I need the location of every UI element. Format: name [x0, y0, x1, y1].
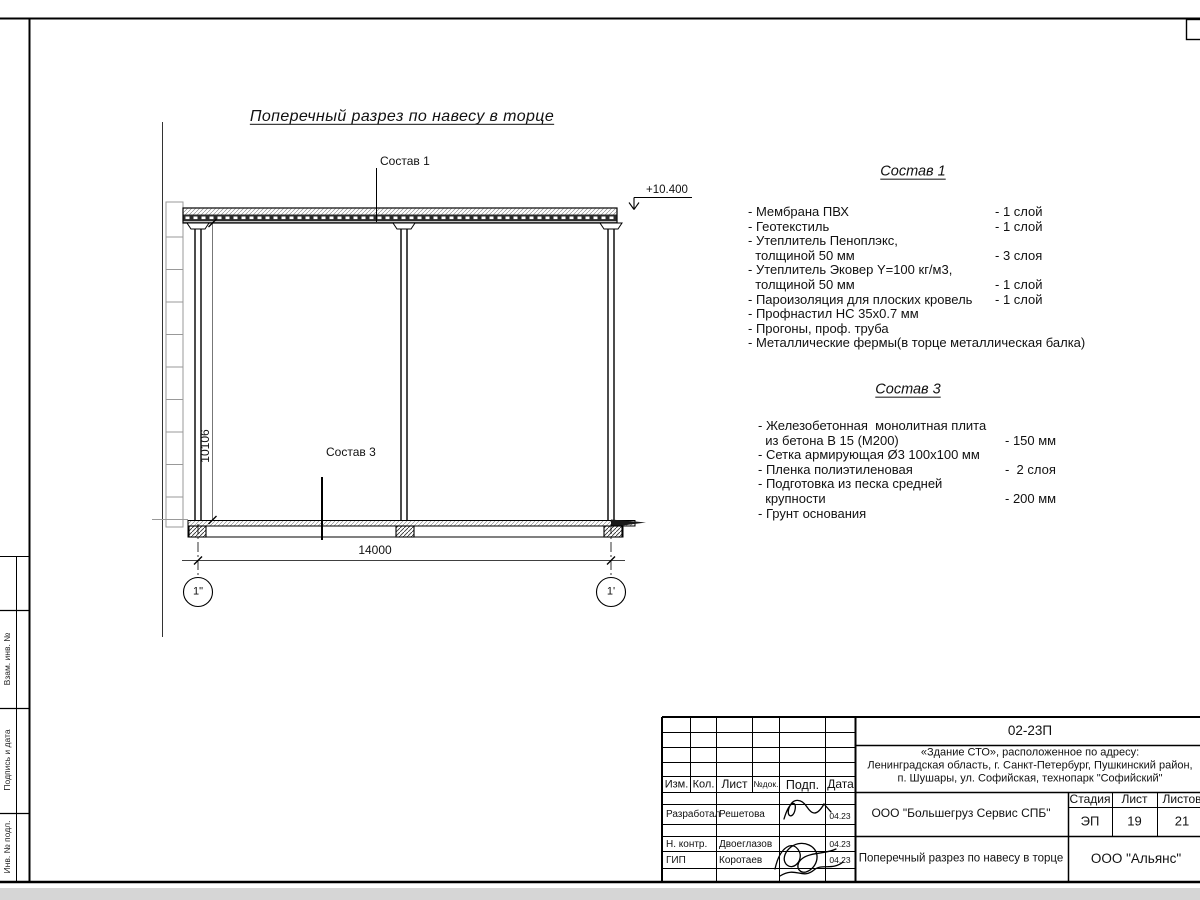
- sheet-number: 19: [1127, 815, 1141, 830]
- elevation-value: +10.400: [646, 184, 688, 197]
- signer-role-developer: Разработал: [666, 809, 720, 821]
- signer-name-gip: Коротаев: [719, 855, 762, 867]
- dim-vertical: 10106: [199, 429, 213, 462]
- margin-label-podpis-data: Подпись и дата: [3, 729, 13, 790]
- spec-item: толщиной 50 мм - 1 слой: [748, 277, 1098, 292]
- spec-item-value: - 2 слоя: [1005, 462, 1056, 477]
- spec-item-text: толщиной 50 мм: [748, 277, 855, 292]
- spec-item: - Утеплитель Эковер Y=100 кг/м3,: [748, 262, 1098, 277]
- col-podp: Подп.: [786, 777, 819, 791]
- spec-item: - Профнастил НС 35х0.7 мм: [748, 306, 1098, 321]
- spec-item-value: - 3 слоя: [995, 248, 1042, 263]
- axis-label-left: 1": [193, 586, 203, 599]
- spec-item: - Металлические фермы(в торце металличес…: [748, 335, 1098, 350]
- spec-item: - Мембрана ПВХ - 1 слой: [748, 204, 1098, 219]
- axis-label-right: 1': [607, 586, 615, 599]
- spec-item: - Геотекстиль - 1 слой: [748, 219, 1098, 234]
- object-address-line2: Ленинградская область, г. Санкт-Петербур…: [867, 760, 1192, 773]
- signer-role-gip: ГИП: [666, 855, 686, 867]
- spec3-list: - Железобетонная монолитная плита из бет…: [758, 418, 1108, 520]
- stage-value: ЭП: [1081, 815, 1100, 830]
- drawing-title: Поперечный разрез по навесу в торце: [250, 108, 554, 126]
- adjacent-structure: [152, 122, 188, 637]
- signer-date-gip: 04.23: [829, 856, 850, 866]
- spec-item: - Пленка полиэтиленовая - 2 слоя: [758, 462, 1108, 477]
- spec-item-value: - 200 мм: [1005, 491, 1056, 506]
- signature-control: [775, 843, 836, 872]
- spec-item-text: - Подготовка из песка средней: [758, 476, 942, 491]
- spec-item-text: толщиной 50 мм: [748, 248, 855, 263]
- spec-item: - Утеплитель Пеноплэкс,: [748, 233, 1098, 248]
- drawing-sheet: Взам. инв. № Подпись и дата Инв. № подл.…: [0, 0, 1200, 900]
- margin-label-inv-podl: Инв. № подл.: [3, 821, 13, 874]
- spec-item-value: - 150 мм: [1005, 433, 1056, 448]
- sheets-total: 21: [1175, 815, 1189, 830]
- dimensions: [182, 168, 692, 607]
- object-address-line1: «Здание СТО», расположенное по адресу:: [921, 747, 1139, 760]
- paper-edge: [0, 888, 1200, 900]
- spec-item-text: - Профнастил НС 35х0.7 мм: [748, 306, 919, 321]
- spec-item-value: - 1 слой: [995, 219, 1043, 234]
- spec-item-value: - 1 слой: [995, 292, 1043, 307]
- spec-item-text: - Утеплитель Пеноплэкс,: [748, 233, 898, 248]
- doc-code: 02-23П: [1008, 723, 1052, 739]
- object-address-line3: п. Шушары, ул. Софийская, технопарк "Соф…: [897, 773, 1162, 786]
- spec-item: крупности - 200 мм: [758, 491, 1108, 506]
- spec-item-text: крупности: [758, 491, 826, 506]
- spec-item-text: - Металлические фермы(в торце металличес…: [748, 335, 1085, 350]
- spec-item-text: - Пленка полиэтиленовая: [758, 462, 913, 477]
- sheets-label: Листов: [1163, 793, 1200, 807]
- slab-and-foundations: [188, 520, 646, 538]
- spec-item-text: - Пароизоляция для плоских кровель: [748, 292, 972, 307]
- signer-date-developer: 04.23: [829, 812, 850, 822]
- signer-name-developer: Решетова: [719, 809, 765, 821]
- col-izm: Изм.: [665, 778, 689, 791]
- signer-role-control: Н. контр.: [666, 839, 707, 851]
- spec-item: - Пароизоляция для плоских кровель - 1 с…: [748, 292, 1098, 307]
- signature-developer: [784, 800, 831, 819]
- spec-item-value: - 1 слой: [995, 204, 1043, 219]
- spec-item: - Подготовка из песка средней: [758, 476, 1108, 491]
- spec-item-text: - Геотекстиль: [748, 219, 829, 234]
- organization-name: ООО "Альянс": [1091, 851, 1181, 867]
- stage-label: Стадия: [1070, 793, 1111, 807]
- margin-label-vzam-inv: Взам. инв. №: [3, 633, 13, 686]
- roof-assembly: [183, 208, 617, 223]
- spec-item-text: - Прогоны, проф. труба: [748, 321, 889, 336]
- dim-horizontal: 14000: [358, 544, 391, 558]
- col-data: Дата: [827, 778, 854, 792]
- spec-item-text: - Сетка армирующая Ø3 100х100 мм: [758, 447, 980, 462]
- spec-item-value: - 1 слой: [995, 277, 1043, 292]
- col-list: Лист: [721, 778, 747, 792]
- corner-box: [1187, 20, 1200, 40]
- spec-item: - Прогоны, проф. труба: [748, 321, 1098, 336]
- spec-item: - Сетка армирующая Ø3 100х100 мм: [758, 447, 1108, 462]
- spec1-heading: Состав 1: [880, 164, 945, 181]
- signer-name-control: Двоеглазов: [719, 839, 772, 851]
- spec-item: - Грунт основания: [758, 506, 1108, 521]
- sheet-title: Поперечный разрез по навесу в торце: [859, 852, 1064, 865]
- sheet-label: Лист: [1121, 793, 1147, 807]
- spec-item: толщиной 50 мм - 3 слоя: [748, 248, 1098, 263]
- spec3-heading: Состав 3: [875, 382, 940, 399]
- spec-item-text: из бетона В 15 (М200): [758, 433, 899, 448]
- spec-item: из бетона В 15 (М200) - 150 мм: [758, 433, 1108, 448]
- spec-item-text: - Грунт основания: [758, 506, 866, 521]
- col-ndok: №док.: [754, 780, 779, 790]
- spec1-list: - Мембрана ПВХ - 1 слой - Геотекстиль - …: [748, 204, 1098, 350]
- spec-item: - Железобетонная монолитная плита: [758, 418, 1108, 433]
- elevation-mark-icon: [629, 198, 692, 210]
- signer-date-control: 04.23: [829, 840, 850, 850]
- spec-item-text: - Утеплитель Эковер Y=100 кг/м3,: [748, 262, 952, 277]
- columns: [187, 223, 622, 521]
- callout-roof-label: Состав 1: [380, 155, 430, 169]
- contractor-name: ООО "Большегруз Сервис СПБ": [871, 807, 1050, 821]
- callout-slab-label: Состав 3: [326, 446, 376, 460]
- spec-item-text: - Мембрана ПВХ: [748, 204, 849, 219]
- spec-item-text: - Железобетонная монолитная плита: [758, 418, 986, 433]
- col-kol: Кол.: [693, 778, 715, 791]
